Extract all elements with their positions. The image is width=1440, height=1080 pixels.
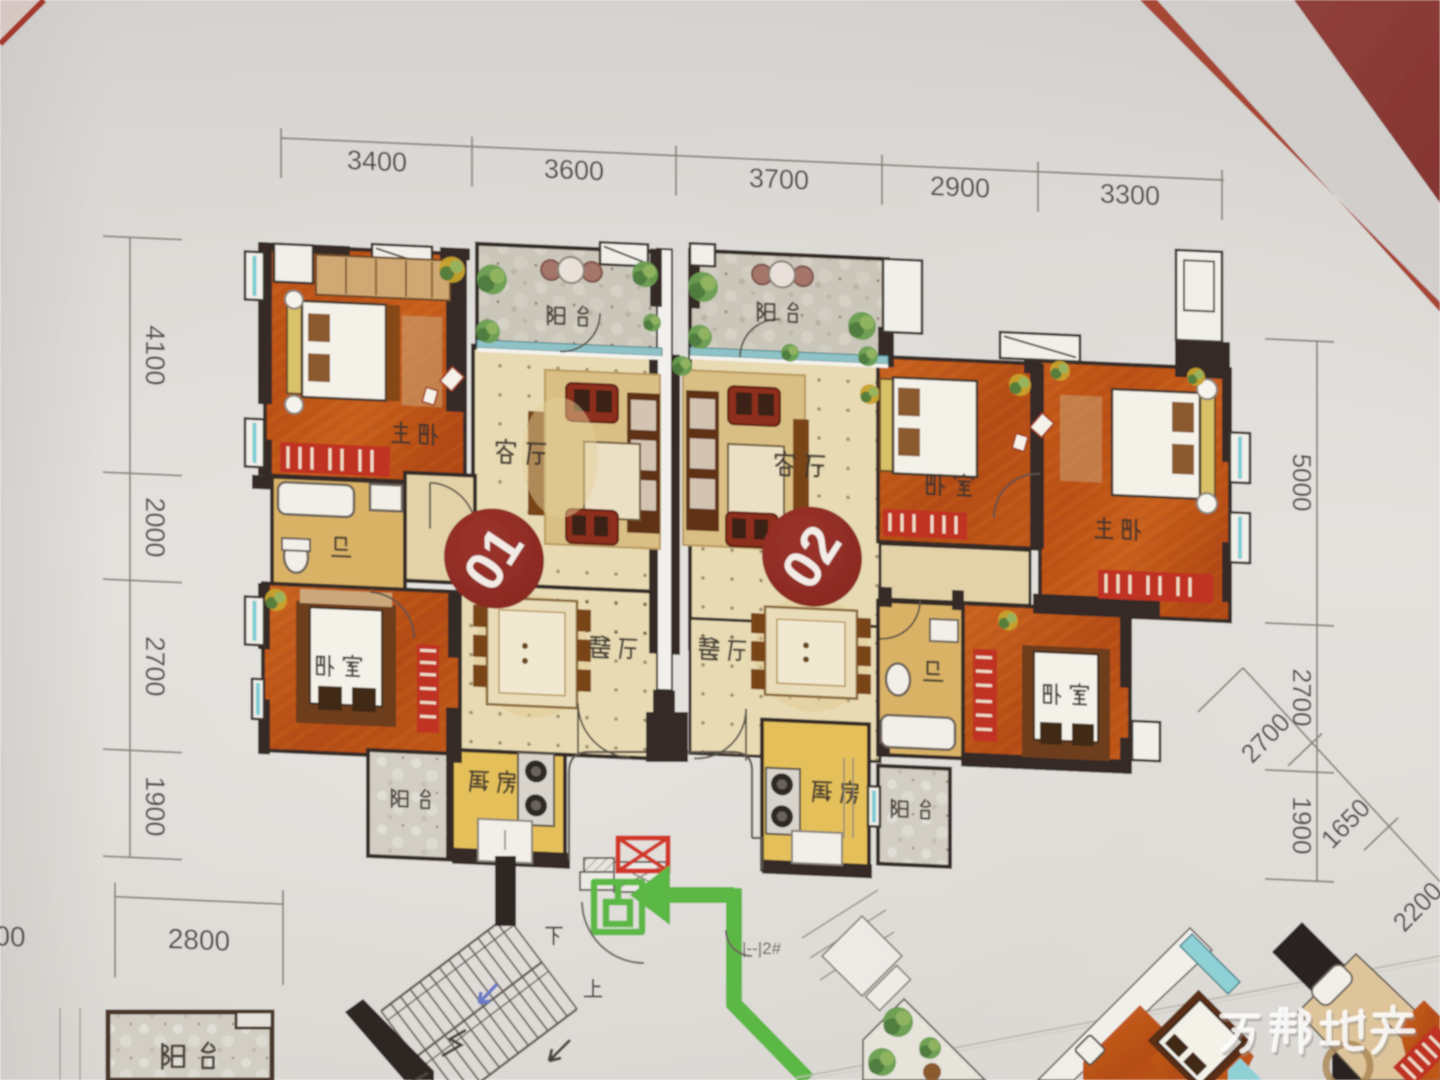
svg-text:2000: 2000 <box>140 497 170 558</box>
svg-text:00: 00 <box>0 920 26 952</box>
svg-text:4100: 4100 <box>140 325 170 386</box>
svg-text:3600: 3600 <box>544 154 604 187</box>
svg-text:5000: 5000 <box>1287 453 1317 512</box>
svg-text:2800: 2800 <box>168 923 230 957</box>
svg-text:1900: 1900 <box>140 776 170 837</box>
svg-text:|--|2#: |--|2# <box>742 939 782 958</box>
svg-text:2900: 2900 <box>930 171 990 204</box>
svg-text:3700: 3700 <box>749 163 809 196</box>
svg-text:3300: 3300 <box>1100 179 1160 212</box>
svg-text:1900: 1900 <box>1287 796 1317 855</box>
svg-text:2700: 2700 <box>1287 668 1317 727</box>
svg-text:3400: 3400 <box>347 145 407 178</box>
svg-text:2700: 2700 <box>140 636 170 697</box>
